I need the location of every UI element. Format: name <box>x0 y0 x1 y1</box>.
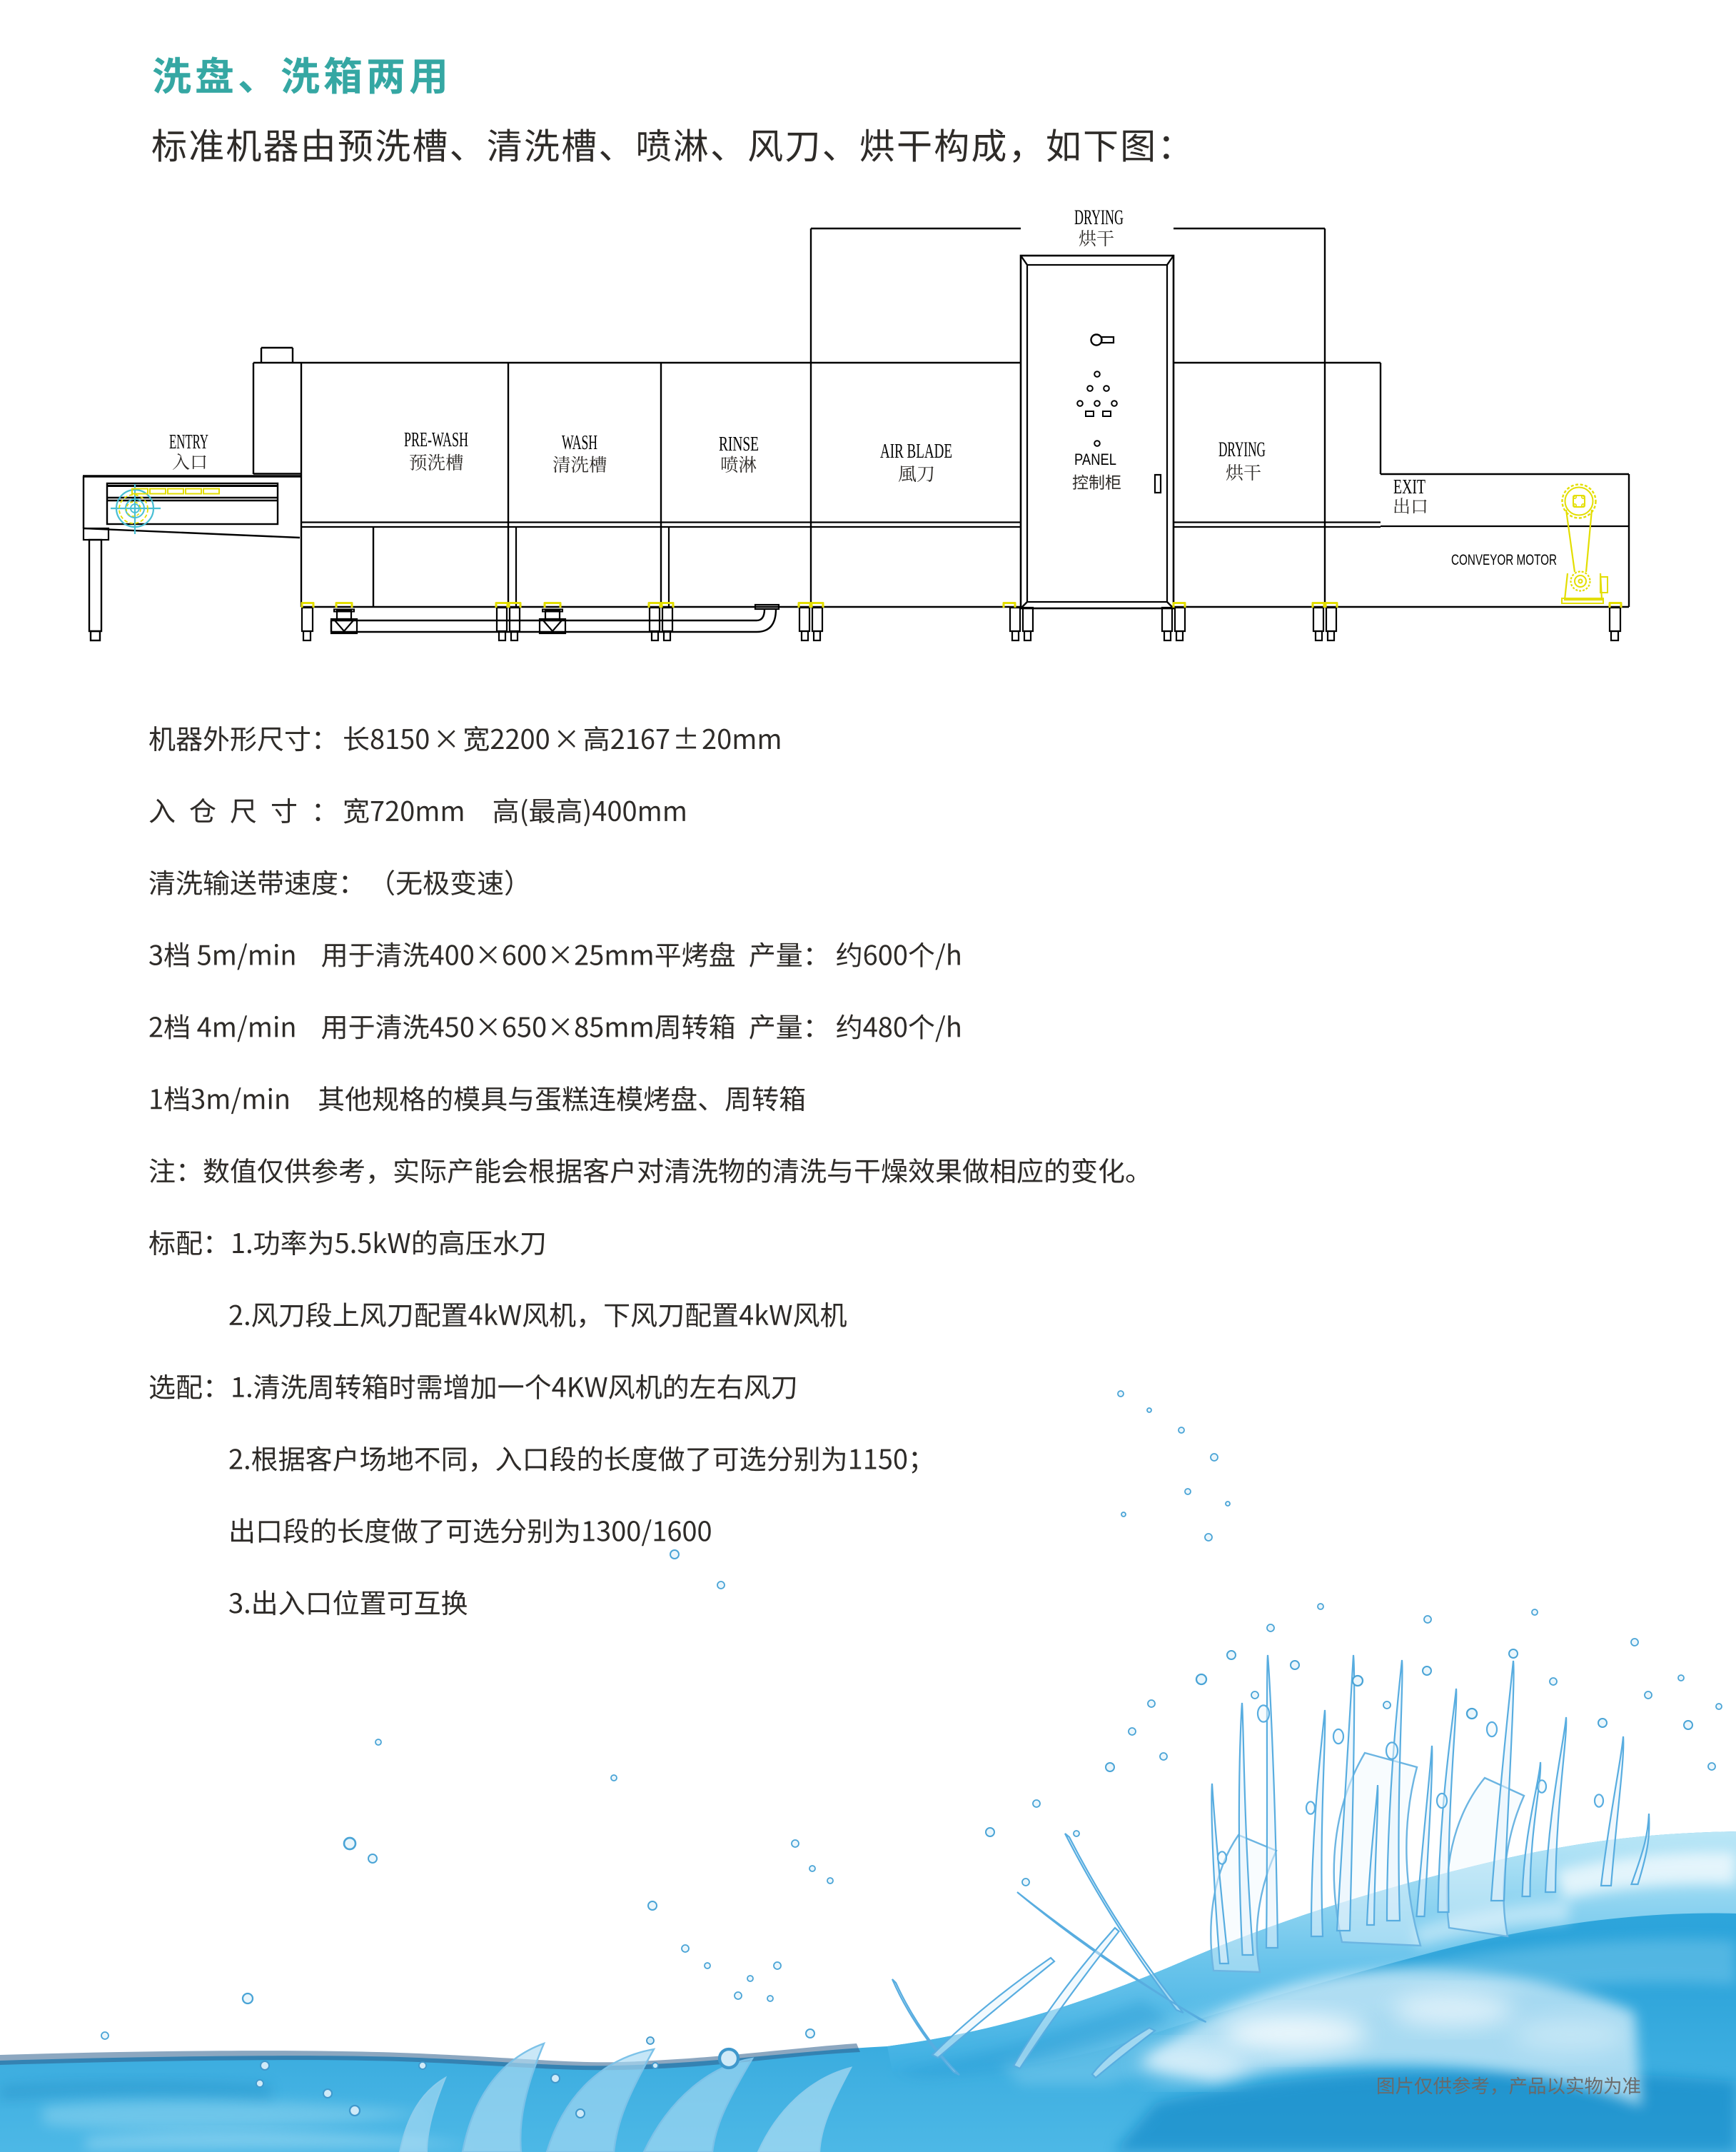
svg-text:DRYING: DRYING <box>1074 206 1124 229</box>
svg-text:ENTRY: ENTRY <box>169 431 208 453</box>
svg-text:PANEL: PANEL <box>1074 451 1116 468</box>
svg-text:EXIT: EXIT <box>1393 476 1425 498</box>
svg-text:CONVEYOR MOTOR: CONVEYOR MOTOR <box>1451 552 1557 568</box>
svg-text:RINSE: RINSE <box>719 433 759 456</box>
svg-text:DRYING: DRYING <box>1218 438 1266 461</box>
svg-text:PRE-WASH: PRE-WASH <box>404 429 468 451</box>
svg-text:AIR BLADE: AIR BLADE <box>880 441 952 463</box>
svg-text:WASH: WASH <box>562 432 597 454</box>
